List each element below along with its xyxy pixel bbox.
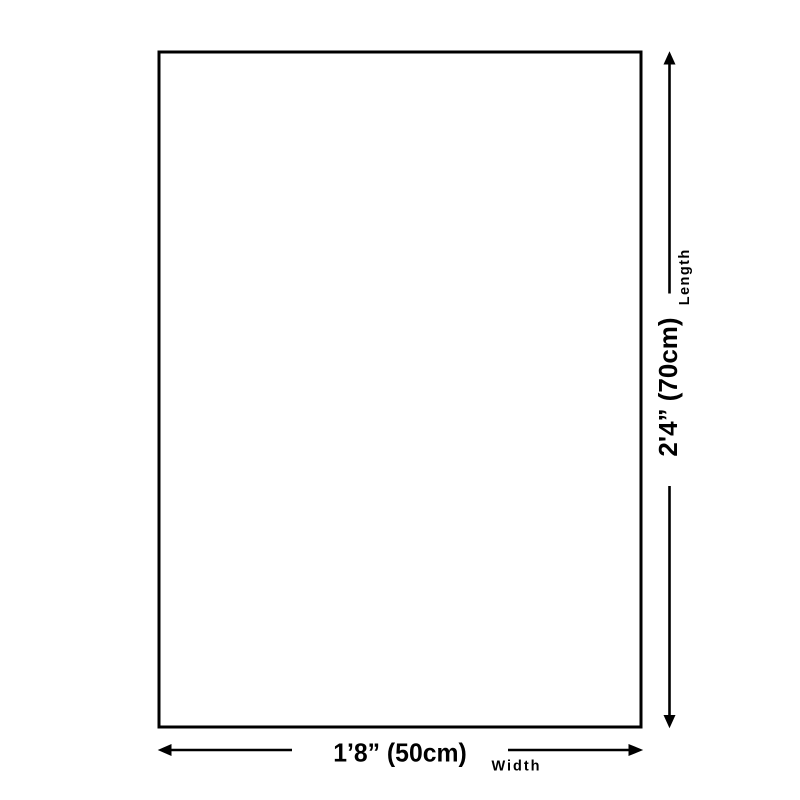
svg-text:2'4” (70cm): 2'4” (70cm) [653,317,683,456]
svg-text:1’8” (50cm): 1’8” (50cm) [333,738,467,768]
svg-text:Length: Length [677,250,693,306]
svg-text:Width: Width [492,759,540,775]
